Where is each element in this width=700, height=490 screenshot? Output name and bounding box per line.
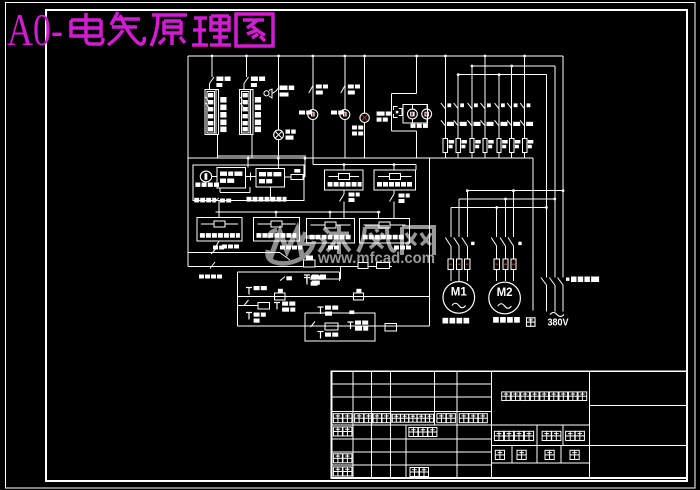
- svg-text:380V: 380V: [548, 317, 569, 329]
- svg-text:A0-: A0-: [7, 4, 63, 55]
- svg-text:M2: M2: [497, 287, 513, 299]
- svg-text:M1: M1: [451, 287, 468, 299]
